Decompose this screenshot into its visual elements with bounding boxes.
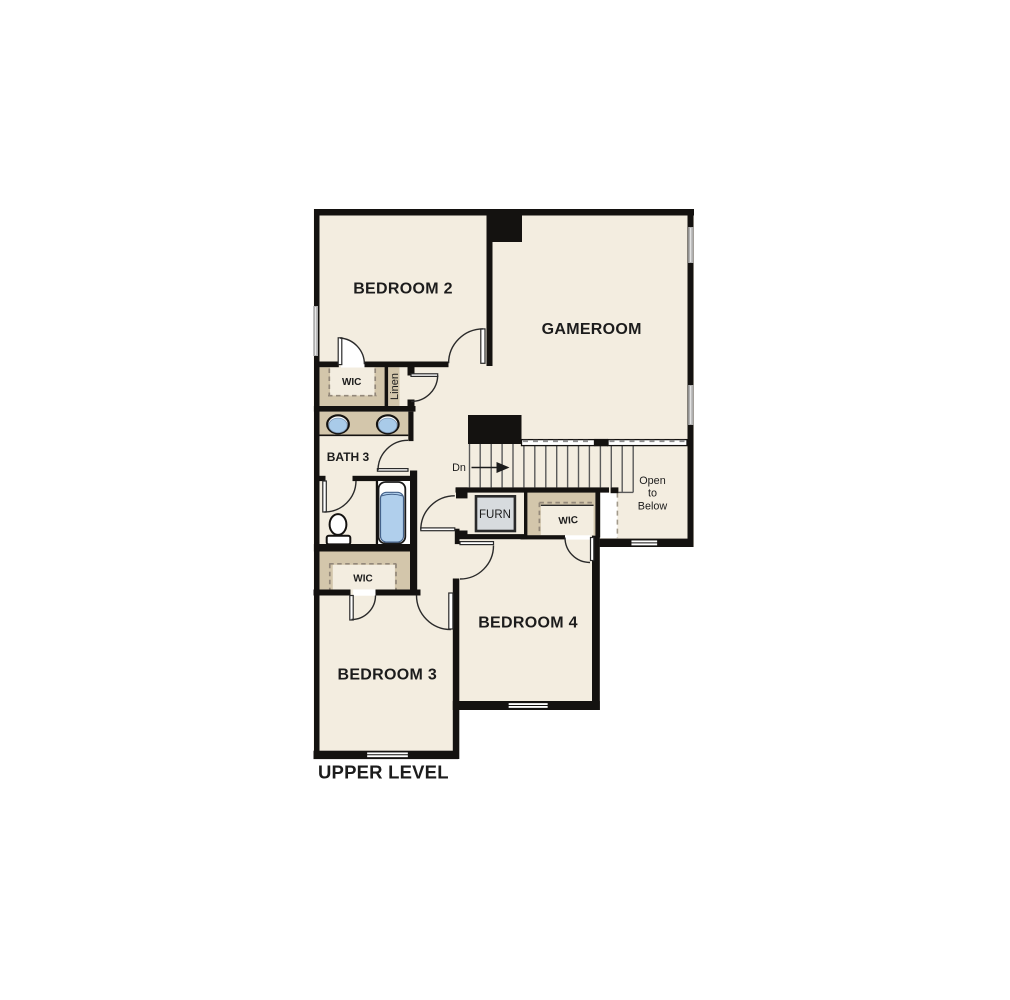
- svg-text:BEDROOM 3: BEDROOM 3: [337, 666, 437, 683]
- svg-text:Open: Open: [639, 475, 665, 487]
- svg-text:GAMEROOM: GAMEROOM: [542, 321, 642, 338]
- svg-text:BATH 3: BATH 3: [327, 450, 370, 464]
- svg-text:WIC: WIC: [342, 377, 361, 388]
- svg-text:BEDROOM 4: BEDROOM 4: [478, 614, 578, 631]
- svg-text:WIC: WIC: [353, 574, 372, 585]
- svg-text:BEDROOM 2: BEDROOM 2: [353, 280, 453, 297]
- svg-text:UPPER LEVEL: UPPER LEVEL: [318, 761, 449, 782]
- svg-text:FURN: FURN: [479, 509, 511, 521]
- svg-text:to: to: [648, 488, 657, 500]
- svg-text:Linen: Linen: [389, 373, 401, 400]
- svg-text:WIC: WIC: [558, 515, 578, 527]
- svg-text:Dn: Dn: [452, 462, 466, 474]
- svg-text:Below: Below: [638, 501, 668, 513]
